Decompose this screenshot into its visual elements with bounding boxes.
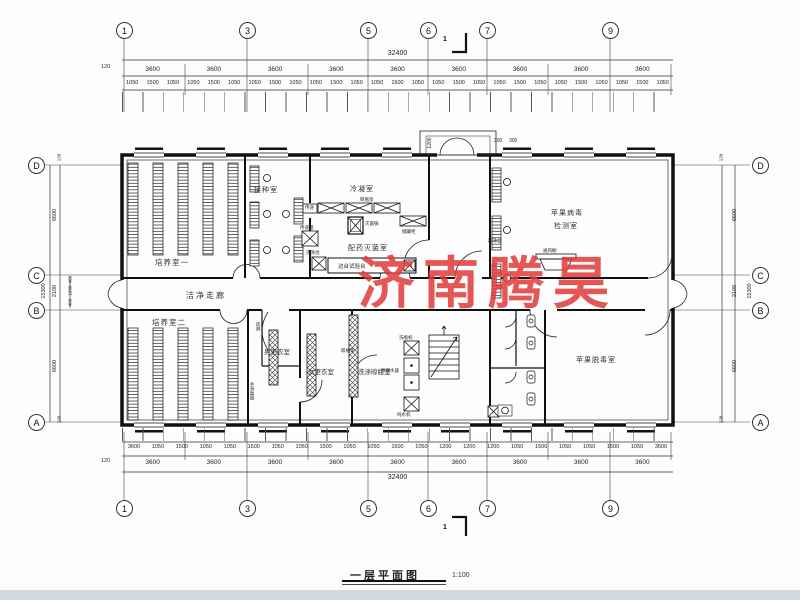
dim-value: 3600 (306, 459, 367, 466)
equip-label-storage-cabinet: 储藏柜 (402, 229, 416, 235)
dim-value: 3600 (612, 66, 673, 73)
equip-label-air-shower: 风淋 (255, 322, 261, 331)
lockers (269, 315, 358, 397)
equip-label-bottle-rack: 晾瓶架 (341, 348, 355, 354)
dim-value: 1500 (601, 444, 625, 450)
toilet-fixtures (505, 315, 535, 405)
room-label-inoculation: 接种室 (254, 185, 278, 195)
axis-bubble-top-9: 9 (602, 22, 619, 39)
entrance-depth-dim: 1200 (427, 134, 433, 152)
section-label-bottom: 1 (443, 524, 447, 531)
equip-label-distiller: 蒸馏水器 (381, 368, 399, 374)
section-label-top: 1 (443, 36, 447, 43)
dim-value: 1500 (571, 80, 591, 86)
entrance-dim-a: 300 (494, 138, 502, 144)
dim-value: 1500 (314, 444, 338, 450)
entrance-dim-b: 300 (509, 138, 517, 144)
dim-value: 1050 (224, 80, 244, 86)
equip-label-wash-sink: 洗涤池 (306, 250, 320, 256)
right-edge-dim-top: 120 (719, 151, 724, 165)
left-total-dim: 15300 (41, 280, 47, 302)
left-edge-dim-bottom: 120 (57, 413, 62, 427)
dim-value: 1050 (218, 444, 242, 450)
dim-value: 3600 (489, 459, 550, 466)
dim-value: 1050 (122, 80, 142, 86)
axis-bubble-bottom-1: 1 (116, 500, 133, 517)
axis-bubble-bottom-3: 3 (239, 500, 256, 517)
left-sub-dim-3: 450 (68, 296, 73, 310)
top-bay-dimensions: 360036003600360036003600360036003600 (122, 66, 673, 73)
axis-bubble-right-b: B (752, 302, 769, 319)
axis-bubble-top-7: 7 (479, 22, 496, 39)
bottom-window-dimensions: 3600105015001050105015001050105015001050… (122, 444, 673, 450)
axis-bubble-bottom-7: 7 (479, 500, 496, 517)
dim-value: 3600 (551, 66, 612, 73)
dim-value: 1500 (204, 80, 224, 86)
dim-value: 3600 (428, 459, 489, 466)
dim-value: 1050 (163, 80, 183, 86)
room-label-virus-detection-1: 苹果病毒 (551, 208, 583, 218)
dim-value: 1500 (632, 80, 652, 86)
right-edge-dim-bottom: 120 (719, 413, 724, 427)
right-seg-dim-3: 6600 (732, 357, 738, 375)
dim-value: 1050 (505, 444, 529, 450)
dim-value: 1050 (362, 444, 386, 450)
equip-label-bottle-rack-top: 晾瓶架 (360, 197, 374, 203)
dim-value: 1050 (290, 444, 314, 450)
dim-value: 3600 (122, 459, 183, 466)
dim-value: 1050 (530, 80, 550, 86)
dim-value: 1500 (510, 80, 530, 86)
left-seg-dim-2: 2100 (52, 282, 58, 300)
dim-value: 1500 (142, 80, 162, 86)
dim-value: 1050 (244, 80, 264, 86)
dim-value: 1500 (170, 444, 194, 450)
dim-value: 1050 (469, 80, 489, 86)
dim-value: 1050 (285, 80, 305, 86)
room-label-women-changing: 女更衣室 (308, 366, 334, 376)
dim-value: 1200 (433, 444, 457, 450)
top-dimension-ticks (122, 92, 673, 112)
left-seg-dim-3: 6600 (52, 357, 58, 375)
room-label-condensation: 冷凝室 (350, 184, 374, 194)
equip-label-pass-box: 传递箱 (300, 225, 314, 231)
equip-label-clean-bench: 超净台 (488, 238, 502, 244)
axis-bubble-bottom-5: 5 (360, 500, 377, 517)
equip-label-pass-window: 传递 (305, 205, 314, 211)
dim-value: 1050 (146, 444, 170, 450)
axis-bubble-left-d: D (28, 157, 45, 174)
bottom-total-dimension: 32400 (122, 474, 673, 481)
axis-bubble-top-3: 3 (239, 22, 256, 39)
dim-value: 3600 (122, 66, 183, 73)
axis-bubble-bottom-6: 6 (420, 500, 437, 517)
room-label-clean-corridor: 洁净走廊 (186, 290, 226, 301)
bottom-dimension-ticks (122, 428, 673, 441)
axis-bubble-right-a: A (752, 414, 769, 431)
dim-value: 3600 (649, 444, 673, 450)
dim-value: 1050 (653, 80, 673, 86)
dim-value: 1050 (551, 80, 571, 86)
axis-bubble-top-5: 5 (360, 22, 377, 39)
axis-bubble-top-1: 1 (116, 22, 133, 39)
room-label-culture-2: 培养室二 (152, 317, 186, 328)
left-seg-dim-1: 6600 (52, 206, 58, 224)
right-total-dim: 15300 (747, 280, 753, 302)
dim-value: 1050 (591, 80, 611, 86)
edge-dim-bottom: 120 (101, 458, 110, 464)
axis-bubble-left-a: A (28, 414, 45, 431)
top-total-dimension: 32400 (122, 50, 673, 57)
bottom-strip (0, 590, 800, 600)
dim-value: 1050 (625, 444, 649, 450)
dim-value: 1050 (553, 444, 577, 450)
dim-value: 1500 (326, 80, 346, 86)
dim-value: 3600 (428, 66, 489, 73)
dim-value: 1050 (409, 444, 433, 450)
dim-value: 1050 (612, 80, 632, 86)
edge-dim-top: 120 (101, 64, 110, 70)
drawing-scale: 1:100 (452, 572, 470, 579)
equip-label-sterilizer: 灭菌锅 (365, 221, 379, 227)
dim-value: 3600 (244, 66, 305, 73)
drawing-title: 一层平面图 (350, 567, 420, 583)
dim-value: 1050 (266, 444, 290, 450)
dim-value: 3600 (183, 66, 244, 73)
bottom-bay-dimensions: 360036003600360036003600360036003600 (122, 459, 673, 466)
dim-value: 1050 (577, 444, 601, 450)
dim-value: 1200 (457, 444, 481, 450)
dim-value: 1050 (346, 80, 366, 86)
dim-value: 1050 (338, 444, 362, 450)
dim-value: 1500 (242, 444, 266, 450)
dim-value: 3600 (183, 459, 244, 466)
dim-value: 3600 (489, 66, 550, 73)
dim-value: 1050 (408, 80, 428, 86)
axis-bubble-bottom-9: 9 (602, 500, 619, 517)
equip-label-bottle-washer: 洗瓶机 (399, 335, 413, 341)
axis-bubble-top-6: 6 (420, 22, 437, 39)
room-label-virus-detection-2: 检测室 (554, 221, 578, 231)
dim-value: 3600 (122, 444, 146, 450)
dim-value: 3600 (551, 459, 612, 466)
dim-value: 1050 (306, 80, 326, 86)
room-label-culture-1: 培养室一 (155, 257, 189, 268)
staircase (429, 326, 459, 379)
room-label-virus-free: 苹果脱毒室 (576, 355, 616, 365)
dim-value: 1500 (385, 444, 409, 450)
dim-value: 1500 (529, 444, 553, 450)
dim-value: 1200 (481, 444, 505, 450)
dim-value: 1500 (265, 80, 285, 86)
right-seg-dim-2: 2100 (732, 282, 738, 300)
axis-bubble-left-b: B (28, 302, 45, 319)
right-seg-dim-1: 6600 (732, 206, 738, 224)
dim-value: 3600 (367, 66, 428, 73)
dim-value: 1050 (183, 80, 203, 86)
left-edge-dim-top: 120 (57, 151, 62, 165)
equip-label-pure-water: 纯水机 (397, 412, 411, 418)
dim-value: 1500 (387, 80, 407, 86)
equip-label-hand-sanitizer: 手消毒器 (249, 382, 255, 400)
watermark-text: 济南腾昊 (358, 248, 658, 320)
dim-value: 1050 (367, 80, 387, 86)
dim-value: 1050 (489, 80, 509, 86)
top-window-dimensions: 1050150010501050150010501050150010501050… (122, 80, 673, 86)
axis-bubble-right-d: D (752, 157, 769, 174)
dim-value: 3600 (612, 459, 673, 466)
dim-value: 1050 (428, 80, 448, 86)
floor-plan-sheet: 1 3 5 6 7 9 1 3 5 6 7 9 D C B A D C B A … (0, 0, 800, 600)
dim-value: 1500 (449, 80, 469, 86)
room-label-men-changing: 男更衣室 (264, 346, 290, 356)
dim-value: 3600 (367, 459, 428, 466)
dim-value: 1050 (194, 444, 218, 450)
axis-bubble-right-c: C (752, 267, 769, 284)
dim-value: 3600 (306, 66, 367, 73)
dim-value: 3600 (244, 459, 305, 466)
